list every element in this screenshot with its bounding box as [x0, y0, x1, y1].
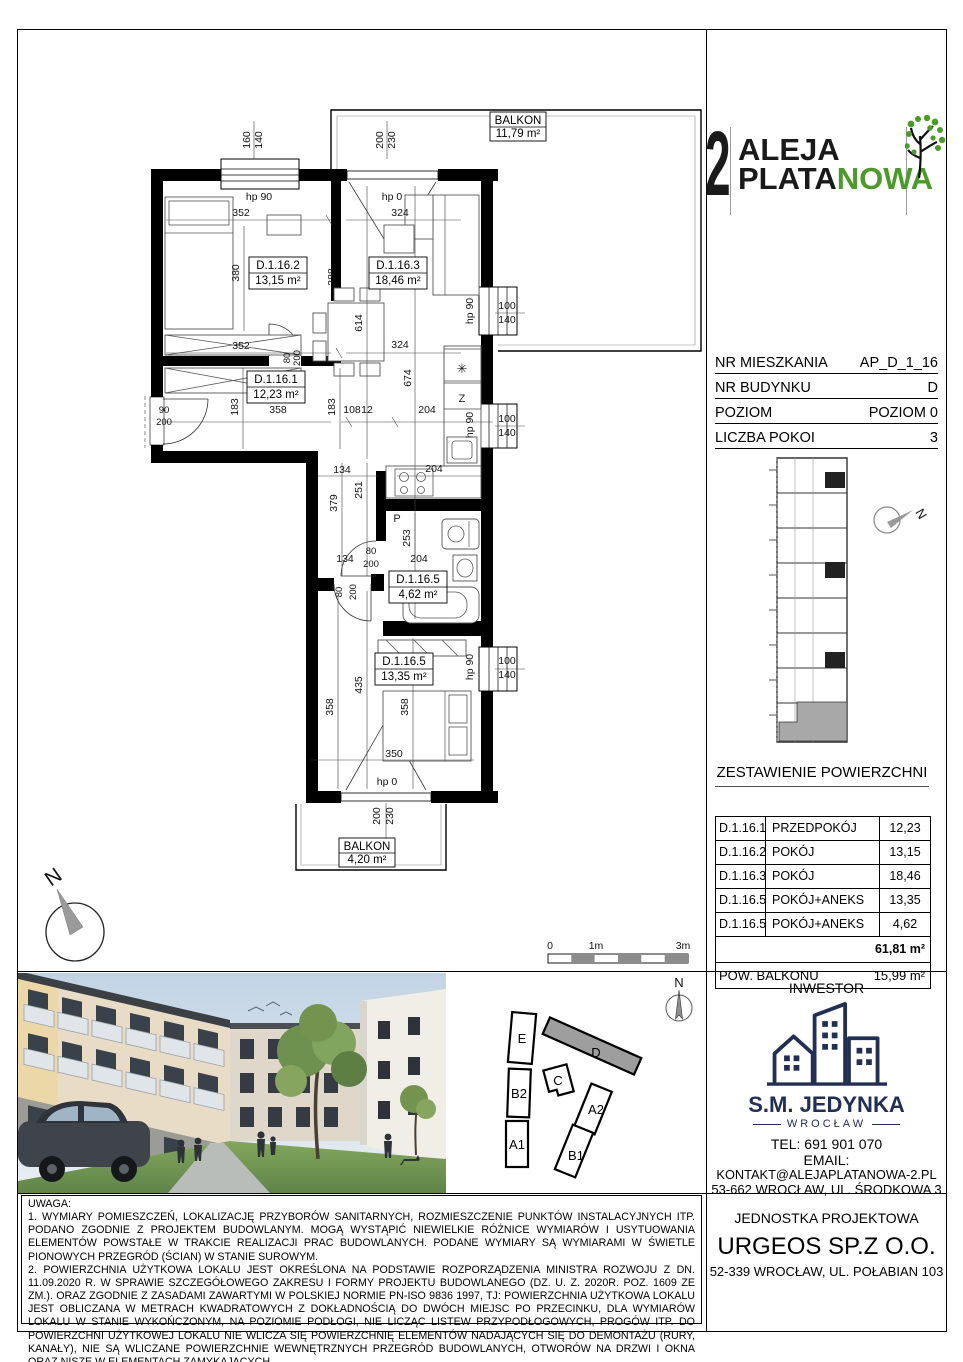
svg-text:hp 90: hp 90 — [246, 191, 272, 203]
north-compass-icon: N — [41, 864, 104, 961]
svg-text:D: D — [591, 1045, 600, 1060]
svg-text:388: 388 — [326, 268, 338, 286]
room-r5a-area: 4,62 m² — [399, 589, 438, 601]
svg-text:B2: B2 — [511, 1086, 527, 1101]
tree-icon — [905, 114, 945, 180]
svg-text:100: 100 — [498, 413, 516, 425]
svg-text:hp 90: hp 90 — [464, 298, 476, 324]
svg-text:0: 0 — [547, 940, 553, 952]
svg-text:134: 134 — [333, 464, 351, 476]
svg-text:183: 183 — [326, 398, 338, 416]
svg-text:hp 90: hp 90 — [464, 412, 476, 438]
svg-text:N: N — [674, 975, 683, 990]
info-label: NR MIESZKANIA — [715, 355, 828, 371]
freezer-label: Z — [459, 393, 466, 405]
svg-text:B1: B1 — [568, 1148, 584, 1163]
svg-text:230: 230 — [384, 807, 396, 825]
notes-heading: UWAGA: — [28, 1198, 695, 1211]
info-label: NR BUDYNKU — [715, 380, 811, 396]
svg-text:100: 100 — [498, 300, 516, 312]
balcony-bottom-name: BALKON — [344, 841, 391, 853]
notes-box: UWAGA: 1. WYMIARY POMIESZCZEŃ, LOKALIZAC… — [21, 1195, 702, 1324]
notes-section: UWAGA: 1. WYMIARY POMIESZCZEŃ, LOKALIZAC… — [18, 1193, 705, 1330]
svg-text:140: 140 — [498, 669, 516, 681]
info-label: POZIOM — [715, 405, 772, 421]
info-row-level: POZIOM POZIOM 0 — [715, 396, 938, 424]
svg-text:435: 435 — [353, 676, 365, 694]
svg-text:200: 200 — [371, 807, 383, 825]
scale-bar: 0 1m 3m — [547, 940, 690, 963]
site-north-icon: N — [666, 975, 692, 1021]
balcony-top-area: 11,79 m² — [496, 128, 541, 140]
design-unit-title: JEDNOSTKA PROJEKTOWA — [707, 1210, 946, 1226]
table-row: D.1.16.3 POKÓJ 18,46 — [716, 865, 930, 889]
investor-city: WROCŁAW — [707, 1118, 946, 1130]
svg-text:350: 350 — [385, 748, 403, 760]
investor-email-label: EMAIL: — [707, 1152, 946, 1168]
svg-text:204: 204 — [425, 463, 443, 475]
floor-plan-sheet: BALKON 11,79 m² BALKON 4,20 m² — [0, 0, 963, 1362]
design-unit-company: URGEOS SP.Z O.O. — [707, 1233, 946, 1261]
building-render-photo — [18, 973, 446, 1193]
info-value: D — [928, 380, 938, 396]
svg-text:hp 90: hp 90 — [464, 654, 476, 680]
room-r5b-id: D.1.16.5 — [382, 656, 425, 668]
sheet-frame: BALKON 11,79 m² BALKON 4,20 m² — [17, 29, 947, 1332]
room-r1-id: D.1.16.1 — [254, 374, 297, 386]
svg-text:134: 134 — [336, 553, 354, 565]
investor-company: S.M. JEDYNKA — [707, 1092, 946, 1118]
svg-text:hp 0: hp 0 — [382, 191, 403, 203]
fridge-icon: ✳ — [457, 361, 468, 376]
room-r2-id: D.1.16.2 — [256, 260, 299, 272]
svg-text:324: 324 — [391, 207, 409, 219]
logo-line2-black: PLATA — [738, 161, 837, 196]
investor-logo — [765, 998, 889, 1090]
room-r1-area: 12,23 m² — [253, 389, 299, 401]
svg-text:204: 204 — [418, 404, 436, 416]
site-plan-diagram: N E B2 A1 C D A2 B1 — [446, 973, 705, 1193]
svg-text:140: 140 — [498, 427, 516, 439]
svg-text:200: 200 — [374, 131, 386, 149]
title-block-column: 2 ALEJA PLATANOWA NR MIESZKANIA — [706, 30, 946, 1331]
building-level-miniplan: N — [707, 450, 946, 760]
info-row-rooms: LICZBA POKOI 3 — [715, 421, 938, 449]
design-unit-address: 52-339 WROCŁAW, UL. POŁABIAN 103 — [707, 1264, 946, 1279]
investor-email: KONTAKT@ALEJAPLATANOWA-2.PL — [707, 1167, 946, 1182]
svg-text:140: 140 — [253, 131, 265, 149]
svg-text:358: 358 — [269, 404, 287, 416]
room-r5a-id: D.1.16.5 — [396, 574, 439, 586]
svg-text:379: 379 — [328, 494, 340, 512]
room-r5b-area: 13,35 m² — [381, 671, 427, 683]
stair-cores — [825, 472, 845, 728]
table-row: D.1.16.5 POKÓJ+ANEKS 4,62 — [716, 913, 930, 937]
info-row-building: NR BUDYNKU D — [715, 371, 938, 399]
svg-text:108: 108 — [343, 404, 361, 416]
area-total: 61,81 m² — [716, 937, 930, 963]
svg-text:12: 12 — [361, 404, 373, 416]
svg-text:230: 230 — [386, 131, 398, 149]
svg-text:A1: A1 — [509, 1137, 525, 1152]
miniplan-north-icon: N — [874, 506, 930, 533]
svg-text:3m: 3m — [676, 940, 691, 952]
svg-text:352: 352 — [232, 340, 250, 352]
room-r2-area: 13,15 m² — [255, 275, 301, 287]
notes-paragraph-2: 2. POWIERZCHNIA UŻYTKOWA LOKALU JEST OKR… — [28, 1264, 695, 1362]
room-r3-id: D.1.16.3 — [376, 260, 419, 272]
washer-label: P — [393, 513, 400, 525]
svg-text:358: 358 — [399, 698, 411, 716]
svg-text:200: 200 — [156, 417, 172, 428]
svg-text:380: 380 — [230, 264, 242, 282]
table-row: D.1.16.1 PRZEDPOKÓJ 12,23 — [716, 817, 930, 841]
highlighted-unit — [779, 702, 847, 741]
svg-text:160: 160 — [241, 131, 253, 149]
logo-divider-left — [730, 127, 731, 215]
investor-address: 53-662 WROCŁAW, UL. ŚRODKOWA 3 — [707, 1182, 946, 1197]
investor-phone: TEL: 691 901 070 — [707, 1136, 946, 1152]
investor-title: INWESTOR — [707, 980, 946, 996]
table-row: D.1.16.2 POKÓJ 13,15 — [716, 841, 930, 865]
svg-text:614: 614 — [353, 314, 365, 332]
svg-text:324: 324 — [391, 339, 409, 351]
svg-text:A2: A2 — [588, 1102, 604, 1117]
info-label: LICZBA POKOI — [715, 430, 815, 446]
logo-number: 2 — [705, 118, 731, 210]
info-value: AP_D_1_16 — [860, 355, 938, 371]
info-value: 3 — [930, 430, 938, 446]
info-value: POZIOM 0 — [869, 405, 938, 421]
balcony-top-name: BALKON — [495, 115, 542, 127]
north-letter: N — [41, 864, 67, 892]
furniture: ✳ Z P — [165, 195, 481, 761]
svg-text:hp 0: hp 0 — [377, 776, 398, 788]
svg-text:140: 140 — [498, 314, 516, 326]
svg-text:1m: 1m — [589, 940, 604, 952]
svg-text:200: 200 — [363, 559, 379, 570]
svg-text:183: 183 — [229, 398, 241, 416]
room-r3-area: 18,46 m² — [375, 275, 421, 287]
svg-text:E: E — [518, 1031, 527, 1046]
svg-text:358: 358 — [324, 698, 336, 716]
svg-text:251: 251 — [353, 481, 365, 499]
info-row-apartment: NR MIESZKANIA AP_D_1_16 — [715, 346, 938, 374]
area-table-title: ZESTAWIENIE POWIERZCHNI — [715, 764, 929, 787]
table-row: D.1.16.5 POKÓJ+ANEKS 13,35 — [716, 889, 930, 913]
logo-wordmark: ALEJA PLATANOWA — [738, 136, 933, 194]
svg-text:80: 80 — [366, 546, 377, 557]
balcony-bottom-area: 4,20 m² — [348, 854, 387, 866]
area-table: D.1.16.1 PRZEDPOKÓJ 12,23 D.1.16.2 POKÓJ… — [715, 816, 931, 989]
svg-text:352: 352 — [232, 207, 250, 219]
svg-text:674: 674 — [402, 369, 414, 387]
building-right — [360, 989, 446, 1165]
svg-text:100: 100 — [498, 655, 516, 667]
svg-text:200: 200 — [348, 584, 359, 600]
notes-paragraph-1: 1. WYMIARY POMIESZCZEŃ, LOKALIZACJĘ PRZY… — [28, 1211, 695, 1264]
svg-text:N: N — [912, 506, 930, 522]
svg-text:C: C — [553, 1073, 562, 1088]
svg-text:90: 90 — [159, 405, 170, 416]
svg-text:253: 253 — [401, 529, 413, 547]
svg-text:200: 200 — [292, 350, 303, 366]
svg-text:80: 80 — [334, 587, 345, 598]
apartment-floor-plan: BALKON 11,79 m² BALKON 4,20 m² — [18, 30, 706, 971]
svg-text:204: 204 — [410, 553, 428, 565]
